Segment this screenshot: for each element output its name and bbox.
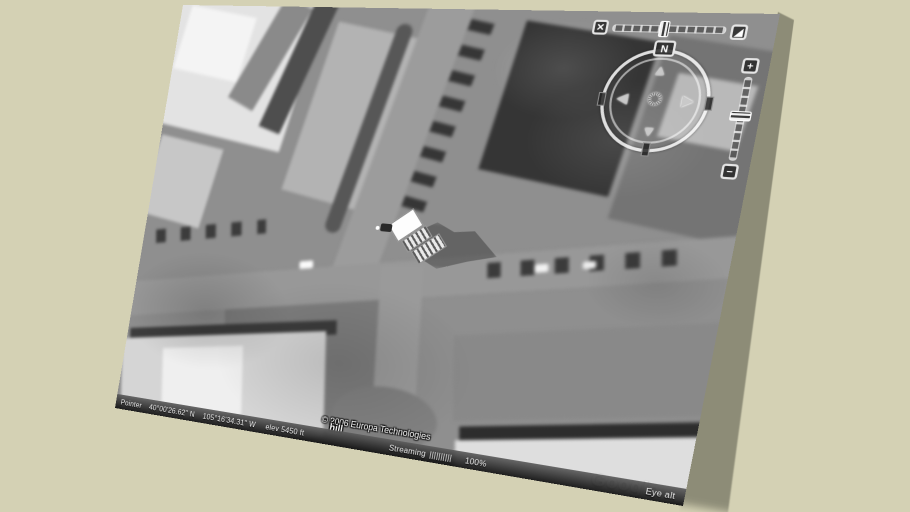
tilt-top-down-button[interactable]: ✕ xyxy=(591,20,609,35)
pointer-latitude: 40°00'26.62" N xyxy=(148,403,195,419)
courtyard xyxy=(281,22,428,214)
warehouse-3d-viewport[interactable]: © 2006 Europa Technologies hill Google P… xyxy=(0,0,910,512)
road-north-south-lower xyxy=(367,266,424,499)
google-earth-screenshot-plane: © 2006 Europa Technologies hill Google P… xyxy=(115,5,780,506)
north-button[interactable]: N xyxy=(652,40,677,57)
plus-icon: + xyxy=(746,60,754,71)
white-car-east-2 xyxy=(583,261,596,269)
tilt-horizon-button[interactable]: ◢ xyxy=(729,24,749,40)
pan-down-arrow-icon[interactable]: ▼ xyxy=(640,123,658,140)
parking-lot-southwest xyxy=(222,287,389,424)
building-bottom-right-shadow-band xyxy=(459,422,712,443)
zoom-out-button[interactable]: − xyxy=(720,163,740,179)
parked-cars-row-west xyxy=(156,219,266,243)
streaming-percent: 100% xyxy=(464,456,487,469)
building-top-left xyxy=(144,5,326,152)
zoom-in-button[interactable]: + xyxy=(740,58,760,74)
tilt-top-down-icon: ✕ xyxy=(595,21,605,33)
street-marker xyxy=(380,223,393,232)
eye-alt-fragment: Eye alt xyxy=(645,487,676,502)
streaming-label: Streaming xyxy=(388,443,426,458)
tilt-slider-handle[interactable] xyxy=(658,21,671,37)
pointer-label: Pointer xyxy=(120,398,142,410)
streaming-bars: |||||||||| xyxy=(429,450,453,463)
tilt-slider[interactable]: ✕ ◢ xyxy=(591,18,752,43)
compass-navigator[interactable]: N ▲ ◀ ▶ ▼ ✺ xyxy=(592,48,720,156)
minus-icon: − xyxy=(725,166,733,177)
tree-line xyxy=(323,23,415,235)
roof-shadow-wedge xyxy=(228,5,313,111)
building-bottom-left-shadow-band xyxy=(130,320,337,341)
building-left-lower xyxy=(138,134,223,228)
pointer-elevation: elev 5450 ft xyxy=(265,423,305,438)
alley-shadow xyxy=(259,5,342,134)
building-top-left-bright-roof xyxy=(173,5,257,82)
parked-cars-column xyxy=(401,17,495,213)
zoom-slider-handle[interactable] xyxy=(729,111,752,122)
tilt-horizon-icon: ◢ xyxy=(734,26,745,38)
pan-up-arrow-icon[interactable]: ▲ xyxy=(652,62,670,79)
parked-cars-row-east xyxy=(487,249,679,278)
zone-southeast xyxy=(453,323,724,421)
north-label: N xyxy=(660,43,669,54)
white-car-west xyxy=(299,260,313,269)
white-car-east-1 xyxy=(535,264,549,273)
